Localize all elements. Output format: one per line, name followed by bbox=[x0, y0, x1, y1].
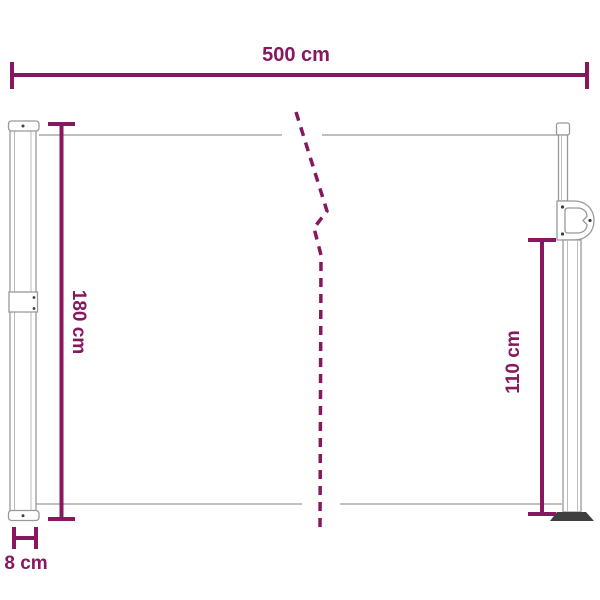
pole-top-cap bbox=[557, 123, 570, 135]
cassette-post bbox=[9, 121, 40, 521]
screw-dot bbox=[561, 205, 564, 208]
front-height-dimension-label: 110 cm bbox=[503, 322, 525, 402]
break-line bbox=[296, 112, 327, 530]
top-width-dimension bbox=[12, 62, 587, 89]
width-dimension-label: 500 cm bbox=[216, 44, 376, 66]
pole-handle bbox=[557, 201, 594, 240]
pole-upper bbox=[559, 135, 568, 201]
handle-grip-hole bbox=[565, 208, 587, 233]
screw-dot bbox=[561, 232, 564, 235]
front-pole bbox=[550, 123, 594, 521]
diagram-canvas bbox=[0, 0, 600, 600]
screw-dot bbox=[33, 307, 36, 310]
right-height-dimension bbox=[528, 240, 556, 514]
dimension-diagram: 500 cm 180 cm 110 cm 8 cm bbox=[0, 0, 600, 600]
screw-dot bbox=[22, 125, 25, 128]
screw-dot bbox=[588, 219, 591, 222]
depth-dimension-label: 8 cm bbox=[0, 553, 86, 575]
total-height-dimension-label: 180 cm bbox=[67, 282, 89, 362]
screw-dot bbox=[33, 296, 36, 299]
screw-dot bbox=[22, 514, 25, 517]
depth-dimension bbox=[14, 527, 36, 549]
pole-lower bbox=[563, 240, 581, 512]
floor-foot bbox=[550, 512, 594, 521]
